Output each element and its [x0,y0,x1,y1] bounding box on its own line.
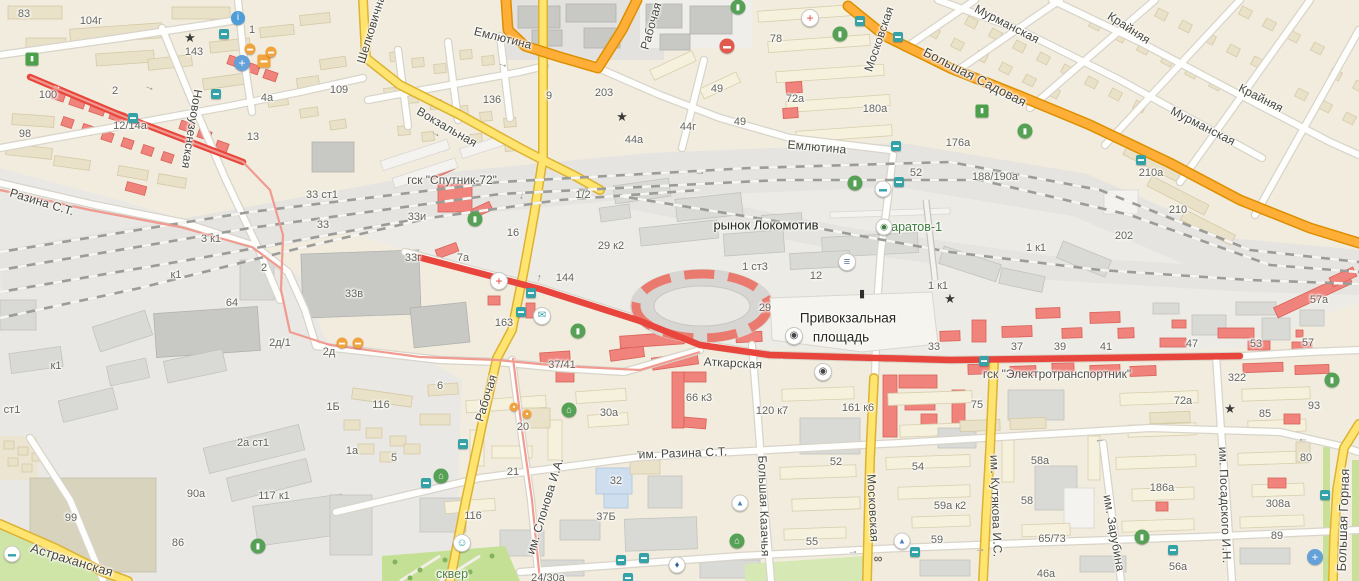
street-label: им. Разина С.Т. [638,444,727,461]
house-number: 53 [1250,338,1262,350]
house-number: 210а [1139,167,1163,179]
house-number: 120 к7 [756,405,788,417]
bus-stop-icon[interactable]: ▬ [623,573,633,581]
house-number: 83 [18,8,30,20]
house-number: 55 [806,536,818,548]
road-arrow: → [847,545,859,558]
house-number: 33и [408,211,426,223]
bus-stop-icon[interactable]: ▬ [910,547,920,557]
house-number: 186а [1150,482,1174,494]
street-label: им. Зарубина [1100,494,1127,573]
road-arrow: → [1297,435,1308,447]
pharmacy-icon[interactable]: + [801,9,819,27]
house-number: 1 к1 [1026,242,1046,254]
theater-icon[interactable]: ☺ [453,534,471,552]
map-canvas[interactable]: НовоузенскаяРазина С.Т.ШелковичнаяВокзал… [0,0,1359,581]
road-arrow: → [635,447,646,459]
road-arrow: → [143,79,158,94]
bicycle-icon[interactable]: ∞ [872,552,885,565]
house-number: 30а [600,407,618,419]
house-number: 86 [172,537,184,549]
shop-icon[interactable]: ▬ [720,39,735,54]
tram-stop-icon[interactable]: ▬ [128,113,138,123]
house-number: 75 [971,399,983,411]
house-number: 4а [261,92,273,104]
store-icon[interactable]: ▮ [731,0,746,15]
house-number: 72а [1174,395,1192,407]
road-arrow: → [694,166,706,179]
road-arrow: → [775,354,785,365]
road-arrow: → [1095,436,1106,448]
street-label: Рабочая [472,373,500,423]
street-label: Большая Казачья [755,455,773,557]
monument-icon[interactable]: ★ [943,291,957,305]
street-label: им. Посадского И.Н. [1216,447,1234,564]
place-label[interactable]: Привокзальная [800,311,896,326]
place-label[interactable]: сквер [436,567,468,581]
fuel-station-icon[interactable]: ▮ [976,105,989,118]
house-number: 33 [317,219,329,231]
house-number: 59а к2 [934,500,966,512]
house-number: 1 [249,24,255,36]
house-number: 24/30а [531,572,565,581]
store-icon[interactable]: ▮ [468,212,483,227]
bus-stop-icon[interactable]: ▬ [891,141,901,151]
house-number: 65/73 [1038,533,1066,545]
house-number: 1Б [326,401,339,413]
place-label[interactable]: гск "Спутник-72" [407,173,497,187]
street-label: Аткарская [703,354,762,371]
house-number: 52 [910,167,922,179]
museum-icon[interactable]: ⌂ [730,534,745,549]
kiosk-icon[interactable]: ▮ [1325,373,1340,388]
house-number: 2а ст1 [237,437,269,449]
bus-stop-icon[interactable]: ▬ [421,478,431,488]
house-number: 5 [391,452,397,464]
street-label: Астраханская [29,540,115,579]
store-icon[interactable]: ▮ [571,324,586,339]
house-number: 59 [931,534,943,546]
bus-stop-icon[interactable]: ▬ [1168,545,1178,555]
house-number: 13 [247,131,259,143]
house-number: 1 ст3 [742,261,768,273]
house-number: 143 [185,46,203,58]
house-number: 210 [1169,204,1187,216]
house-number: 188/190а [972,171,1018,183]
road-arrow: → [974,543,986,556]
house-number: 1а [346,445,358,457]
road-arrow: → [531,272,545,285]
house-number: 64 [226,297,238,309]
house-number: 66 к3 [686,392,712,404]
house-number: 72а [786,93,804,105]
bus-stop-icon[interactable]: ▬ [979,356,989,366]
house-number: 180а [863,103,887,115]
street-label: Шелковичная [354,0,390,65]
education-icon[interactable]: ▲ [732,495,749,512]
tram-icon[interactable]: ▬ [245,44,256,55]
house-number: 33 ст1 [306,189,338,201]
panorama-icon[interactable]: ◉ [785,327,803,345]
fuel-station-icon[interactable]: ▮ [26,53,39,66]
street-label: им. Кутякова И.С. [987,455,1005,558]
house-number: ст1 [4,404,21,416]
street-label: Разина С.Т. [8,186,76,219]
house-number: 47 [1186,338,1198,350]
house-number: 202 [1115,230,1133,242]
street-label: Мурманская [1168,104,1238,149]
house-number: 49 [711,83,723,95]
street-label: Большая Садовая [921,44,1029,109]
house-number: 57а [1310,294,1328,306]
tram-icon[interactable]: ▬ [266,47,277,58]
street-label: Емлютина [787,137,847,156]
house-number: 21 [507,466,519,478]
info-icon[interactable]: i [231,11,245,25]
street-label: Вокзальная [414,104,479,150]
church-icon[interactable]: + [1307,549,1323,565]
house-number: 90а [187,488,205,500]
trolleybus-icon[interactable]: ▬ [4,546,21,563]
house-number: 46а [1037,568,1055,580]
store-icon[interactable]: ▮ [848,176,863,191]
street-label: Рабочая [638,1,665,51]
community-icon[interactable]: ⌂ [562,403,577,418]
house-number: 37 [1011,341,1023,353]
store-icon[interactable]: ▮ [1135,530,1150,545]
fountain-icon[interactable]: ♦ [669,557,686,574]
house-number: 117 к1 [258,490,290,502]
street-label: Емлютина [473,24,534,52]
house-number: 6 [437,380,443,392]
monument-icon[interactable]: ★ [183,30,197,44]
house-number: 136 [483,94,501,106]
house-number: к1 [171,269,182,281]
place-label[interactable]: гск "Электротранспортник" [983,367,1131,381]
store-icon[interactable]: ▮ [1018,124,1033,139]
house-number: 163 [495,317,513,329]
house-number: 12 [810,270,822,282]
house-number: 39 [1054,341,1066,353]
house-number: 176а [946,137,970,149]
house-number: 85 [1259,408,1271,420]
road-arrow: → [516,190,530,203]
house-number: к1 [51,360,62,372]
traffic-light-icon[interactable]: • [510,403,519,412]
house-number: 58а [1031,455,1049,467]
house-number: 56а [1169,561,1187,573]
house-number: 144 [556,272,574,284]
house-number: 109 [330,84,348,96]
bus-stop-icon[interactable]: ▬ [1320,490,1330,500]
house-number: 203 [595,87,613,99]
store-icon[interactable]: ▮ [833,27,848,42]
bus-stop-icon[interactable]: ▬ [894,177,904,187]
house-number: 33 [928,341,940,353]
monument-icon[interactable]: ★ [1223,401,1237,415]
house-number: 99 [65,512,77,524]
house-number: 308а [1266,498,1290,510]
house-number: 93 [1308,400,1320,412]
road-arrow: → [50,79,63,93]
tram-icon[interactable]: ▬ [353,338,364,349]
pharmacy-icon[interactable]: + [490,272,508,290]
house-number: 29 к2 [598,240,624,252]
house-number: 104г [80,15,102,27]
house-number: 16 [507,227,519,239]
house-number: 80 [1300,452,1312,464]
bus-stop-icon[interactable]: ▬ [893,32,903,42]
post-icon[interactable]: ✉ [533,307,551,325]
bus-stop-icon[interactable]: ▬ [616,555,626,565]
bus-stop-icon[interactable]: ▬ [211,89,221,99]
street-label: Большая Горная [1334,468,1353,571]
bus-stop-icon[interactable]: ▬ [1136,155,1146,165]
tram-icon[interactable]: ▬ [337,338,348,349]
street-label: Мурманская [972,2,1042,47]
street-label: Крайняя [1236,81,1285,115]
house-number: 20 [517,421,529,433]
house-number: 41 [1100,341,1112,353]
community-icon[interactable]: ⌂ [434,469,449,484]
house-number: 3 к1 [201,233,221,245]
house-number: 9 [546,90,552,102]
house-number: 44г [680,121,696,133]
road-arrow: → [428,125,443,141]
railway-station-icon[interactable]: ◉ [876,219,893,236]
street-label: Московская [861,5,896,74]
labels-overlay: НовоузенскаяРазина С.Т.ШелковичнаяВокзал… [0,0,1359,581]
house-number: 2д/1 [269,337,291,349]
house-number: 1/2 [575,189,590,201]
house-number: 58 [1021,495,1033,507]
house-number: 78 [770,33,782,45]
house-number: 98 [19,128,31,140]
house-number: 57 [1302,337,1314,349]
store-icon[interactable]: ▮ [251,539,266,554]
camera-icon[interactable]: ◉ [814,363,832,381]
bus-stop-icon[interactable]: ▬ [516,307,526,317]
house-number: 2 [112,85,118,97]
house-number: 33в [345,288,363,300]
place-label[interactable]: рынок Локомотив [713,218,818,233]
train-icon[interactable]: ≡ [838,253,856,271]
bus-stop-icon[interactable]: ▬ [639,553,649,563]
street-label: Крайняя [1105,9,1153,47]
traffic-light-icon[interactable]: • [523,410,532,419]
house-number: 54 [912,461,924,473]
house-number: 52 [830,456,842,468]
street-label: им. Слонова И.А. [524,456,567,556]
house-number: 116 [464,510,482,522]
house-number: 2 [261,262,267,274]
bus-stop-icon[interactable]: ▬ [458,439,468,449]
house-number: 37/41 [548,359,576,371]
house-number: 89 [1271,530,1283,542]
monument-icon[interactable]: ★ [615,109,629,123]
house-number: 7а [457,252,469,264]
bus-stop-icon[interactable]: ▬ [855,16,865,26]
house-number: 33г [405,252,421,264]
house-number: 2д [323,346,336,358]
house-number: 32 [610,475,622,487]
house-number: 161 к6 [842,402,874,414]
street-label: Московская [864,474,882,542]
education-icon[interactable]: ▲ [894,533,911,550]
bus-stop-icon[interactable]: ▬ [526,288,536,298]
place-label[interactable]: площадь [813,330,869,345]
monument-icon[interactable]: ▮ [856,288,868,300]
house-number: 322 [1228,372,1246,384]
church-icon[interactable]: + [234,55,250,71]
trolleybus-icon[interactable]: ▬ [875,181,892,198]
house-number: 44а [625,134,643,146]
house-number: 37Б [596,511,615,523]
house-number: 49 [734,116,746,128]
bus-stop-icon[interactable]: ▬ [219,29,229,39]
road-arrow: → [496,57,510,71]
street-label: Новоузенская [179,88,205,169]
house-number: 29 [759,302,771,314]
house-number: 116 [372,399,390,411]
